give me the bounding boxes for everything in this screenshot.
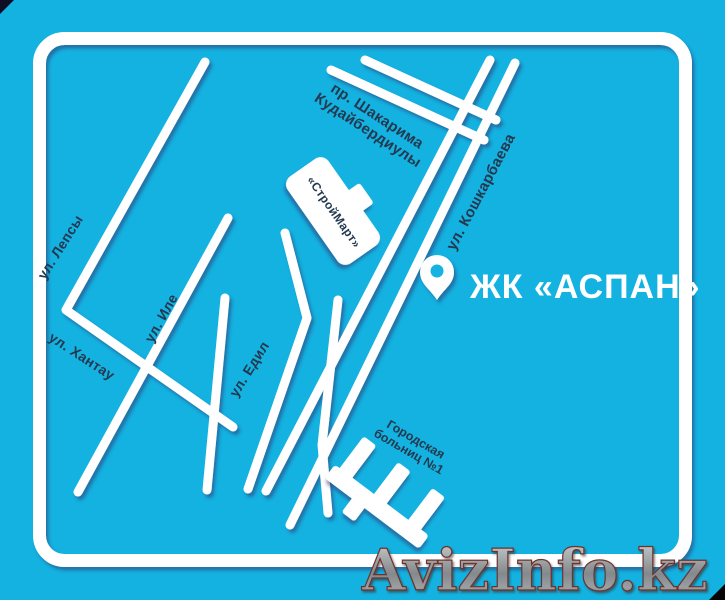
road-ile (78, 218, 228, 492)
location-pin-label: ЖК «АСПАН» (470, 268, 701, 307)
location-pin-icon (420, 255, 454, 300)
watermark-text: AvizInfo.kz (361, 537, 708, 600)
road-lepsy-khantau (66, 62, 233, 427)
map-canvas: AvizInfo.kz ул. Лепсы ул. Иле ул. Хантау… (0, 0, 725, 600)
road-stub-south (207, 298, 225, 490)
